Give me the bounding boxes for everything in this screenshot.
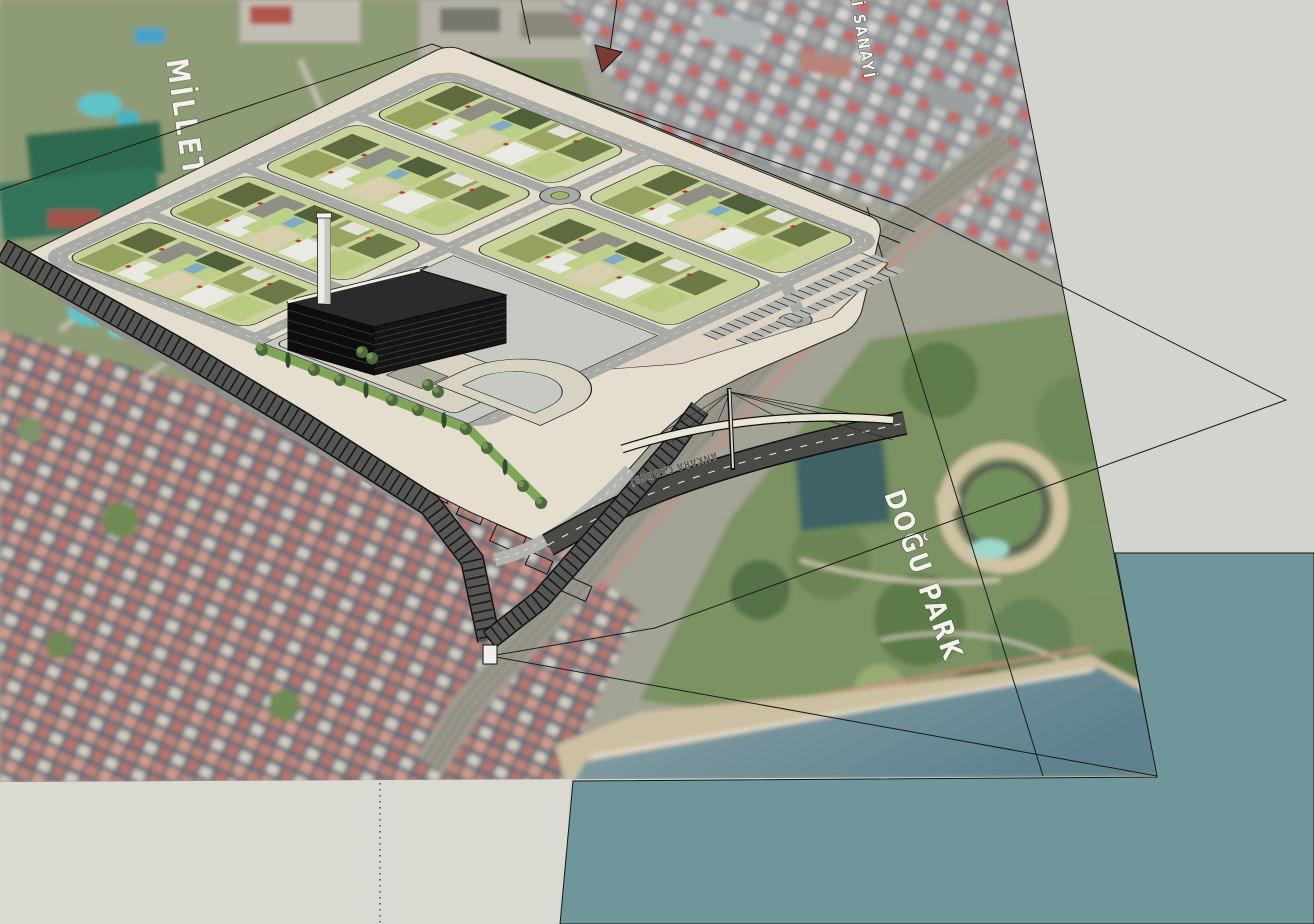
chimney-tower[interactable] <box>317 213 332 304</box>
viaduct-portal-box <box>483 645 497 664</box>
ground-plane-left[interactable] <box>0 779 570 924</box>
model-viewport[interactable]: MİLLET BAHÇESİ ESKİ SANAYİ DOĞU PARK <box>0 0 1314 924</box>
